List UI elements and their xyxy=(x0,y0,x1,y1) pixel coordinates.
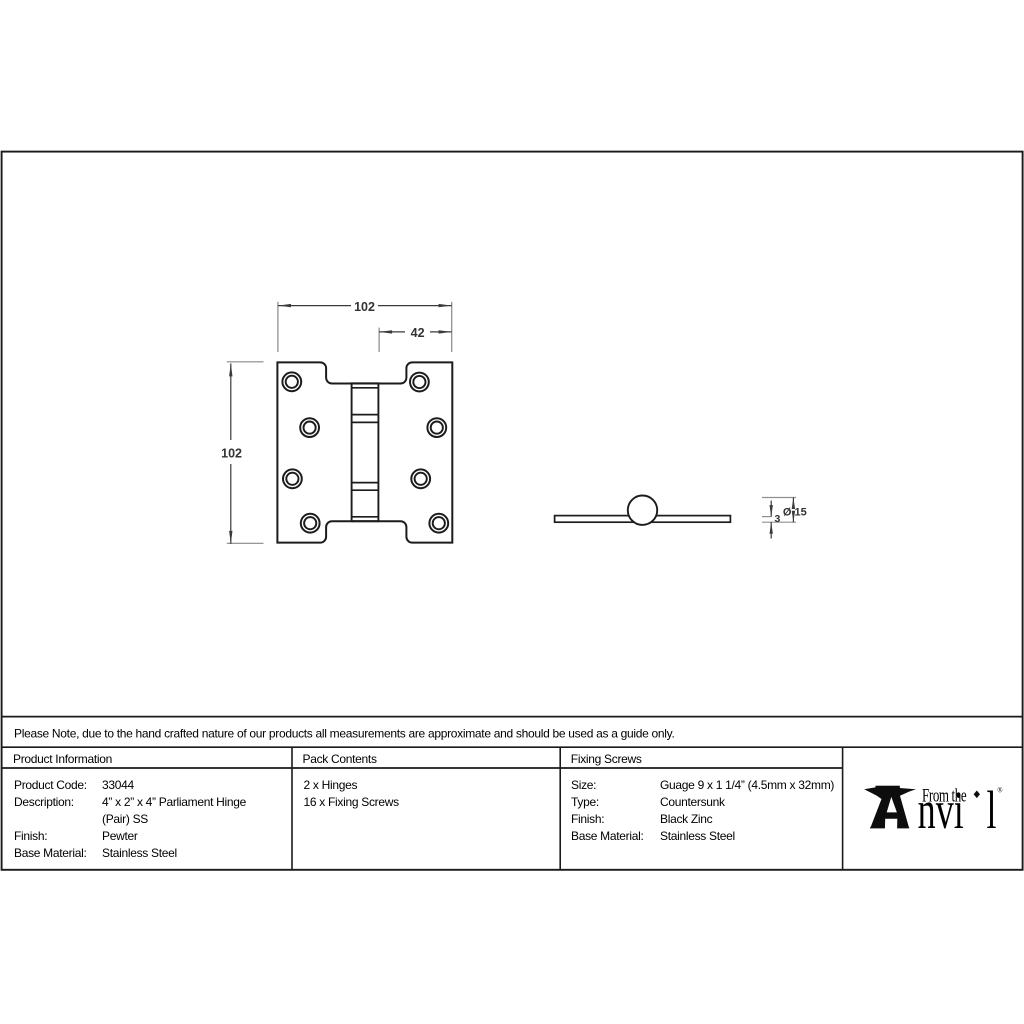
svg-text:Base Material:: Base Material: xyxy=(14,846,87,860)
svg-text:Description:: Description: xyxy=(14,795,74,809)
svg-text:Fixing Screws: Fixing Screws xyxy=(571,752,642,766)
svg-text:Black Zinc: Black Zinc xyxy=(660,812,713,826)
svg-text:Please Note, due to the hand c: Please Note, due to the hand crafted nat… xyxy=(14,726,674,740)
svg-text:Pack Contents: Pack Contents xyxy=(303,752,377,766)
svg-text:®: ® xyxy=(997,787,1003,795)
svg-text:102: 102 xyxy=(221,446,242,460)
svg-text:102: 102 xyxy=(354,300,375,314)
svg-text:2 x Hinges: 2 x Hinges xyxy=(304,778,358,792)
svg-text:Stainless Steel: Stainless Steel xyxy=(660,829,735,843)
svg-text:Product Code:: Product Code: xyxy=(14,778,87,792)
svg-text:(Pair) SS: (Pair) SS xyxy=(102,812,148,826)
svg-text:Countersunk: Countersunk xyxy=(660,795,726,809)
svg-text:Product Information: Product Information xyxy=(13,752,112,766)
svg-text:Type:: Type: xyxy=(571,795,599,809)
svg-text:42: 42 xyxy=(411,326,425,340)
svg-text:Base Material:: Base Material: xyxy=(571,829,644,843)
svg-text:Pewter: Pewter xyxy=(102,829,138,843)
svg-text:Finish:: Finish: xyxy=(14,829,47,843)
svg-text:3: 3 xyxy=(774,513,780,525)
svg-text:Guage 9 x 1 1/4” (4.5mm x 32mm: Guage 9 x 1 1/4” (4.5mm x 32mm) xyxy=(660,778,834,792)
svg-text:Stainless Steel: Stainless Steel xyxy=(102,846,177,860)
svg-text:16 x Fixing Screws: 16 x Fixing Screws xyxy=(304,795,400,809)
svg-text:4” x 2” x 4” Parliament Hinge: 4” x 2” x 4” Parliament Hinge xyxy=(102,795,247,809)
svg-text:l: l xyxy=(987,780,997,840)
svg-text:Size:: Size: xyxy=(571,778,596,792)
svg-text:Ø 15: Ø 15 xyxy=(783,506,807,518)
svg-text:Finish:: Finish: xyxy=(571,812,604,826)
svg-text:nvi: nvi xyxy=(918,780,964,840)
svg-text:33044: 33044 xyxy=(102,778,134,792)
